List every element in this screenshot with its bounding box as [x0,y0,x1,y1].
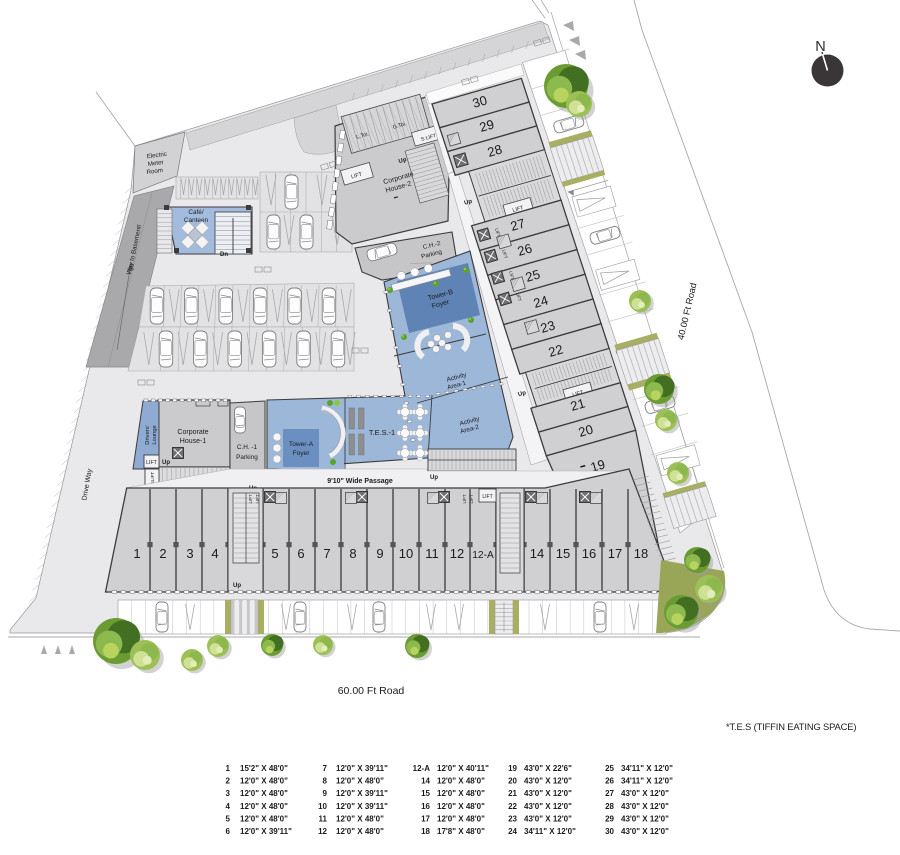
svg-text:8: 8 [323,777,328,786]
svg-text:12'0" X 39'11": 12'0" X 39'11" [240,827,292,836]
svg-text:7: 7 [323,764,328,773]
svg-text:43'0" X 12'0": 43'0" X 12'0" [524,814,572,823]
svg-text:12'0" X 48'0": 12'0" X 48'0" [240,814,288,823]
svg-text:10: 10 [318,802,327,811]
svg-text:25: 25 [605,764,614,773]
svg-text:34'11" X 12'0": 34'11" X 12'0" [524,827,576,836]
svg-text:T.E.S.-1: T.E.S.-1 [369,428,395,437]
svg-text:12'0" X 48'0": 12'0" X 48'0" [336,777,384,786]
svg-text:17: 17 [421,814,430,823]
svg-text:Foyer: Foyer [293,450,311,457]
svg-text:LIFT: LIFT [482,494,492,500]
svg-text:43'0" X 12'0": 43'0" X 12'0" [621,827,669,836]
svg-text:43'0" X 12'0": 43'0" X 12'0" [621,789,669,798]
svg-text:12'0" X 39'11": 12'0" X 39'11" [336,802,388,811]
svg-text:19: 19 [508,764,517,773]
svg-text:16: 16 [421,802,430,811]
svg-text:*T.E.S (TIFFIN EATING SPACE): *T.E.S (TIFFIN EATING SPACE) [726,721,856,732]
svg-text:4: 4 [211,546,218,561]
svg-text:10: 10 [399,546,413,561]
svg-text:18: 18 [634,546,648,561]
svg-text:5: 5 [226,814,231,823]
svg-text:43'0" X 22'6": 43'0" X 22'6" [524,764,572,773]
svg-text:14: 14 [421,777,430,786]
svg-text:23: 23 [508,814,517,823]
svg-text:12'0" X 48'0": 12'0" X 48'0" [437,814,485,823]
svg-text:2: 2 [226,777,231,786]
svg-text:House-1: House-1 [180,438,207,445]
svg-text:Up: Up [162,460,170,466]
svg-text:29: 29 [605,814,614,823]
svg-text:43'0" X 12'0": 43'0" X 12'0" [621,814,669,823]
svg-text:9: 9 [376,546,383,561]
svg-text:12'0" X 48'0": 12'0" X 48'0" [240,777,288,786]
svg-text:N: N [815,39,825,55]
svg-text:26: 26 [605,777,614,786]
svg-text:11: 11 [425,546,439,561]
svg-text:LIFT: LIFT [146,460,157,466]
svg-text:43'0" X 12'0": 43'0" X 12'0" [524,789,572,798]
svg-text:17: 17 [608,546,622,561]
svg-text:3: 3 [186,546,193,561]
svg-text:Corporate: Corporate [177,429,208,436]
svg-text:16: 16 [582,546,596,561]
svg-text:15: 15 [556,546,570,561]
svg-text:7: 7 [323,546,330,561]
svg-text:Dn: Dn [220,252,228,258]
svg-text:Up: Up [233,583,241,589]
svg-text:LIFT: LIFT [469,494,474,503]
svg-text:12'0" X 39'11": 12'0" X 39'11" [336,764,388,773]
svg-text:1: 1 [226,764,231,773]
svg-text:8: 8 [349,546,356,561]
svg-text:Café/: Café/ [188,209,203,216]
svg-text:24: 24 [508,827,517,836]
svg-text:21: 21 [508,789,517,798]
svg-text:3: 3 [226,789,231,798]
svg-text:43'0" X 12'0": 43'0" X 12'0" [524,777,572,786]
svg-text:17'8" X 48'0": 17'8" X 48'0" [437,827,485,836]
svg-text:43'0" X 12'0": 43'0" X 12'0" [524,802,572,811]
svg-text:C.H. -1: C.H. -1 [237,444,258,451]
svg-text:12'0" X 48'0": 12'0" X 48'0" [437,802,485,811]
svg-text:9: 9 [323,789,328,798]
svg-text:6: 6 [226,827,231,836]
svg-text:12-A: 12-A [472,550,494,561]
svg-text:12'0" X 48'0": 12'0" X 48'0" [437,777,485,786]
svg-text:12'0" X 48'0": 12'0" X 48'0" [336,814,384,823]
svg-text:Drivers': Drivers' [145,425,151,444]
svg-text:Parking: Parking [236,454,258,461]
svg-text:15: 15 [421,789,430,798]
svg-text:Up: Up [430,475,438,481]
svg-text:12'0" X 39'11": 12'0" X 39'11" [336,789,388,798]
svg-text:34'11" X 12'0": 34'11" X 12'0" [621,764,673,773]
svg-text:12: 12 [450,546,464,561]
svg-text:14: 14 [530,546,544,561]
svg-text:LIFT: LIFT [255,494,260,503]
svg-text:SLIFT: SLIFT [150,472,155,485]
svg-text:12'0" X 40'11": 12'0" X 40'11" [437,764,489,773]
svg-text:34'11" X 12'0": 34'11" X 12'0" [621,777,673,786]
svg-text:LIFT: LIFT [462,494,467,503]
svg-text:12'0" X 48'0": 12'0" X 48'0" [240,802,288,811]
svg-text:Tower-A: Tower-A [289,441,314,448]
svg-text:2: 2 [159,546,166,561]
svg-text:6: 6 [297,546,304,561]
svg-text:12: 12 [318,827,327,836]
svg-text:5: 5 [271,546,278,561]
svg-text:12'0" X 48'0": 12'0" X 48'0" [336,827,384,836]
svg-text:4: 4 [226,802,231,811]
svg-text:28: 28 [605,802,614,811]
svg-text:12'0" X 48'0": 12'0" X 48'0" [240,789,288,798]
svg-text:12-A: 12-A [413,764,431,773]
svg-text:30: 30 [605,827,614,836]
svg-text:22: 22 [508,802,517,811]
svg-text:20: 20 [508,777,517,786]
svg-text:9'10" Wide Passage: 9'10" Wide Passage [327,478,393,485]
svg-text:1: 1 [133,546,140,561]
svg-text:15'2" X 48'0": 15'2" X 48'0" [240,764,288,773]
svg-text:11: 11 [319,814,328,823]
svg-text:LIFT: LIFT [248,494,253,503]
svg-text:Lounge: Lounge [152,425,158,444]
svg-text:12'0" X 48'0": 12'0" X 48'0" [437,789,485,798]
svg-text:18: 18 [421,827,430,836]
svg-text:43'0" X 12'0": 43'0" X 12'0" [621,802,669,811]
svg-text:60.00 Ft Road: 60.00 Ft Road [338,685,405,697]
svg-text:27: 27 [605,789,614,798]
